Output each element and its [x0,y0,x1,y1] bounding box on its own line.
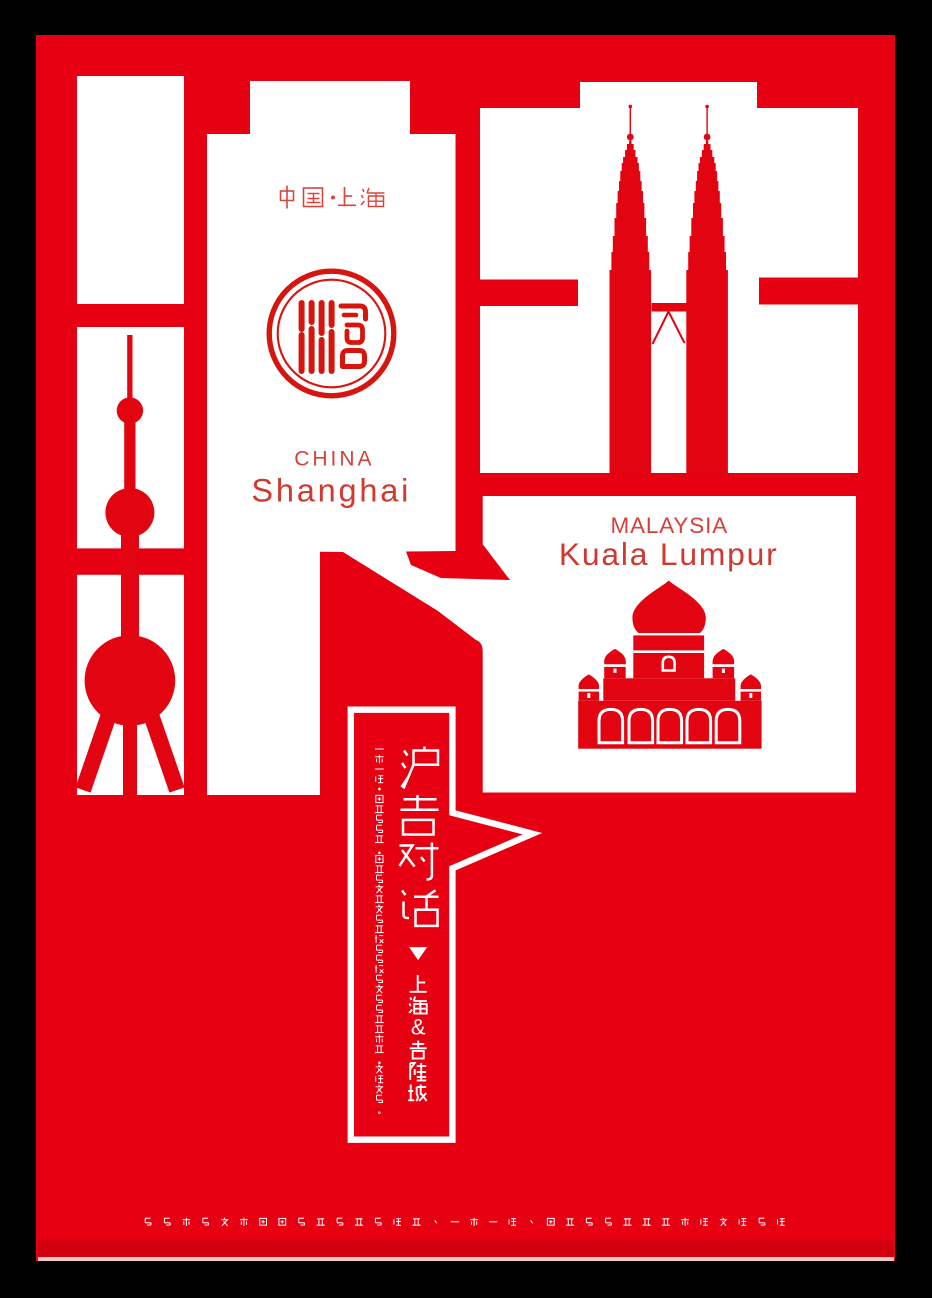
svg-text:MALAYSIA: MALAYSIA [611,513,729,538]
svg-text:Kuala Lumpur: Kuala Lumpur [559,536,779,572]
svg-text:Shanghai: Shanghai [251,473,411,509]
svg-text:CHINA: CHINA [294,447,374,470]
svg-text:&: & [411,1015,426,1040]
